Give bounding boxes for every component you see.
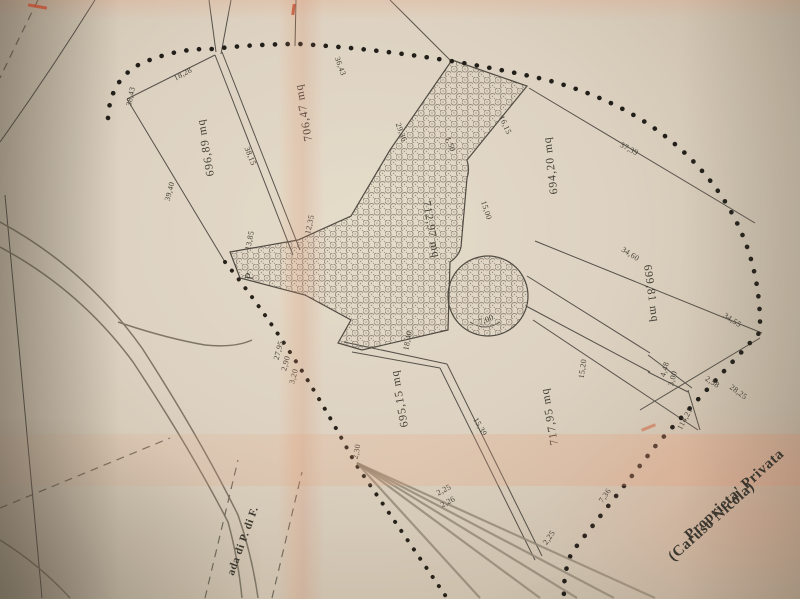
survey-line (390, 0, 452, 62)
survey-line (357, 463, 614, 598)
parcel-area-label: 706,47 mq (293, 83, 315, 142)
dimension-label: 7,36 (597, 487, 613, 505)
survey-line (5, 195, 42, 598)
survey-line (0, 540, 70, 598)
dimension-label: 38,15 (242, 145, 258, 166)
survey-line (0, 438, 170, 508)
survey-line (0, 222, 258, 598)
survey-line (221, 0, 231, 54)
survey-line (357, 463, 480, 598)
survey-line (205, 460, 238, 598)
dimension-label: 18,28 (172, 65, 193, 82)
survey-line (222, 52, 300, 250)
site-plan-photo: 706,47 mq696,89 mq694,20 mq699,81 mq712,… (0, 0, 800, 599)
parcel-area-label: 694,20 mq (542, 136, 561, 195)
dimension-label: 28,25 (728, 383, 749, 402)
survey-line (127, 99, 225, 262)
survey-line (0, 247, 242, 598)
survey-line (529, 88, 755, 223)
survey-line (0, 0, 95, 142)
dimension-label: 15,00 (479, 200, 494, 221)
turning-circle-hatched (448, 256, 528, 336)
dimension-label: 34,55 (722, 311, 743, 329)
dimension-label: 2,25 (541, 529, 557, 547)
dimension-label: 3,20 (287, 368, 300, 385)
dimension-label: 37,39 (618, 140, 639, 157)
survey-line (357, 463, 577, 598)
dimension-label: 15,39 (471, 416, 489, 437)
dimension-label: 36,43 (333, 55, 348, 76)
dimension-label: 39,40 (163, 181, 177, 202)
parcel-area-label: 699,81 mq (641, 264, 661, 323)
parcel-area-label: 695,15 mq (389, 369, 411, 428)
dimension-label: 18,40 (401, 330, 413, 351)
survey-line (526, 306, 650, 372)
dimension-label: 34,60 (620, 245, 641, 263)
dimension-label: 12,35 (303, 214, 316, 235)
dimension-label: 38,43 (124, 86, 137, 107)
survey-line (127, 55, 215, 99)
survey-line (0, 0, 38, 78)
dimension-label: 114,21 (675, 406, 694, 431)
dimension-label: 15,20 (577, 358, 589, 379)
parcel-area-label: 696,89 mq (195, 118, 217, 177)
survey-line (527, 276, 650, 353)
dimension-label: 2,58 (704, 374, 722, 390)
survey-line (209, 0, 216, 52)
dimension-label: 29,36 (394, 121, 409, 142)
dimension-label: 2,30 (351, 443, 363, 460)
site-plan-drawing: 706,47 mq696,89 mq694,20 mq699,81 mq712,… (0, 0, 800, 599)
parcel-area-label: 717,95 mq (539, 387, 561, 446)
dimension-label: 16,15 (497, 114, 513, 135)
survey-line (272, 472, 302, 598)
